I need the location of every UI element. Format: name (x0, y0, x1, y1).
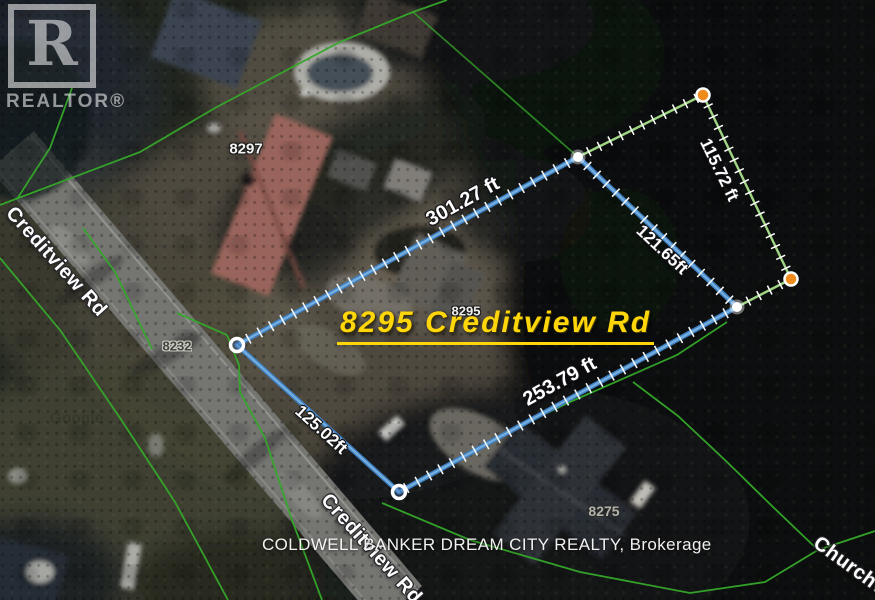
map-attribution: Google (50, 410, 104, 427)
extension-line (578, 95, 703, 157)
parcel-line (0, 258, 228, 600)
realtor-logo-word: REALTOR® (6, 91, 126, 113)
vertex-dot-marker (573, 152, 583, 162)
listing-map-image: 301.27 ft115.72 ft121.65ft253.79 ft125.0… (0, 0, 875, 600)
vertex-ring-marker (393, 486, 406, 499)
property-boundary-overlay (0, 0, 875, 600)
property-address-title: 8295 Creditview Rd (337, 306, 654, 345)
house-number-label: 8232 (163, 339, 192, 354)
extension-line (737, 279, 791, 307)
extension-ticks (587, 94, 699, 156)
realtor-logo-icon: R (8, 4, 96, 88)
vertex-ring-marker (231, 339, 244, 352)
extension-corner-marker (697, 89, 710, 102)
house-number-label: 8275 (588, 503, 619, 519)
realtor-logo: R REALTOR® (6, 4, 126, 113)
parcel-line (633, 382, 818, 550)
house-number-label: 8297 (229, 141, 262, 158)
parcel-line (413, 12, 578, 157)
extension-corner-marker (785, 273, 798, 286)
brokerage-watermark: COLDWELL BANKER DREAM CITY REALTY, Broke… (262, 535, 712, 555)
vertex-dot-marker (732, 302, 742, 312)
